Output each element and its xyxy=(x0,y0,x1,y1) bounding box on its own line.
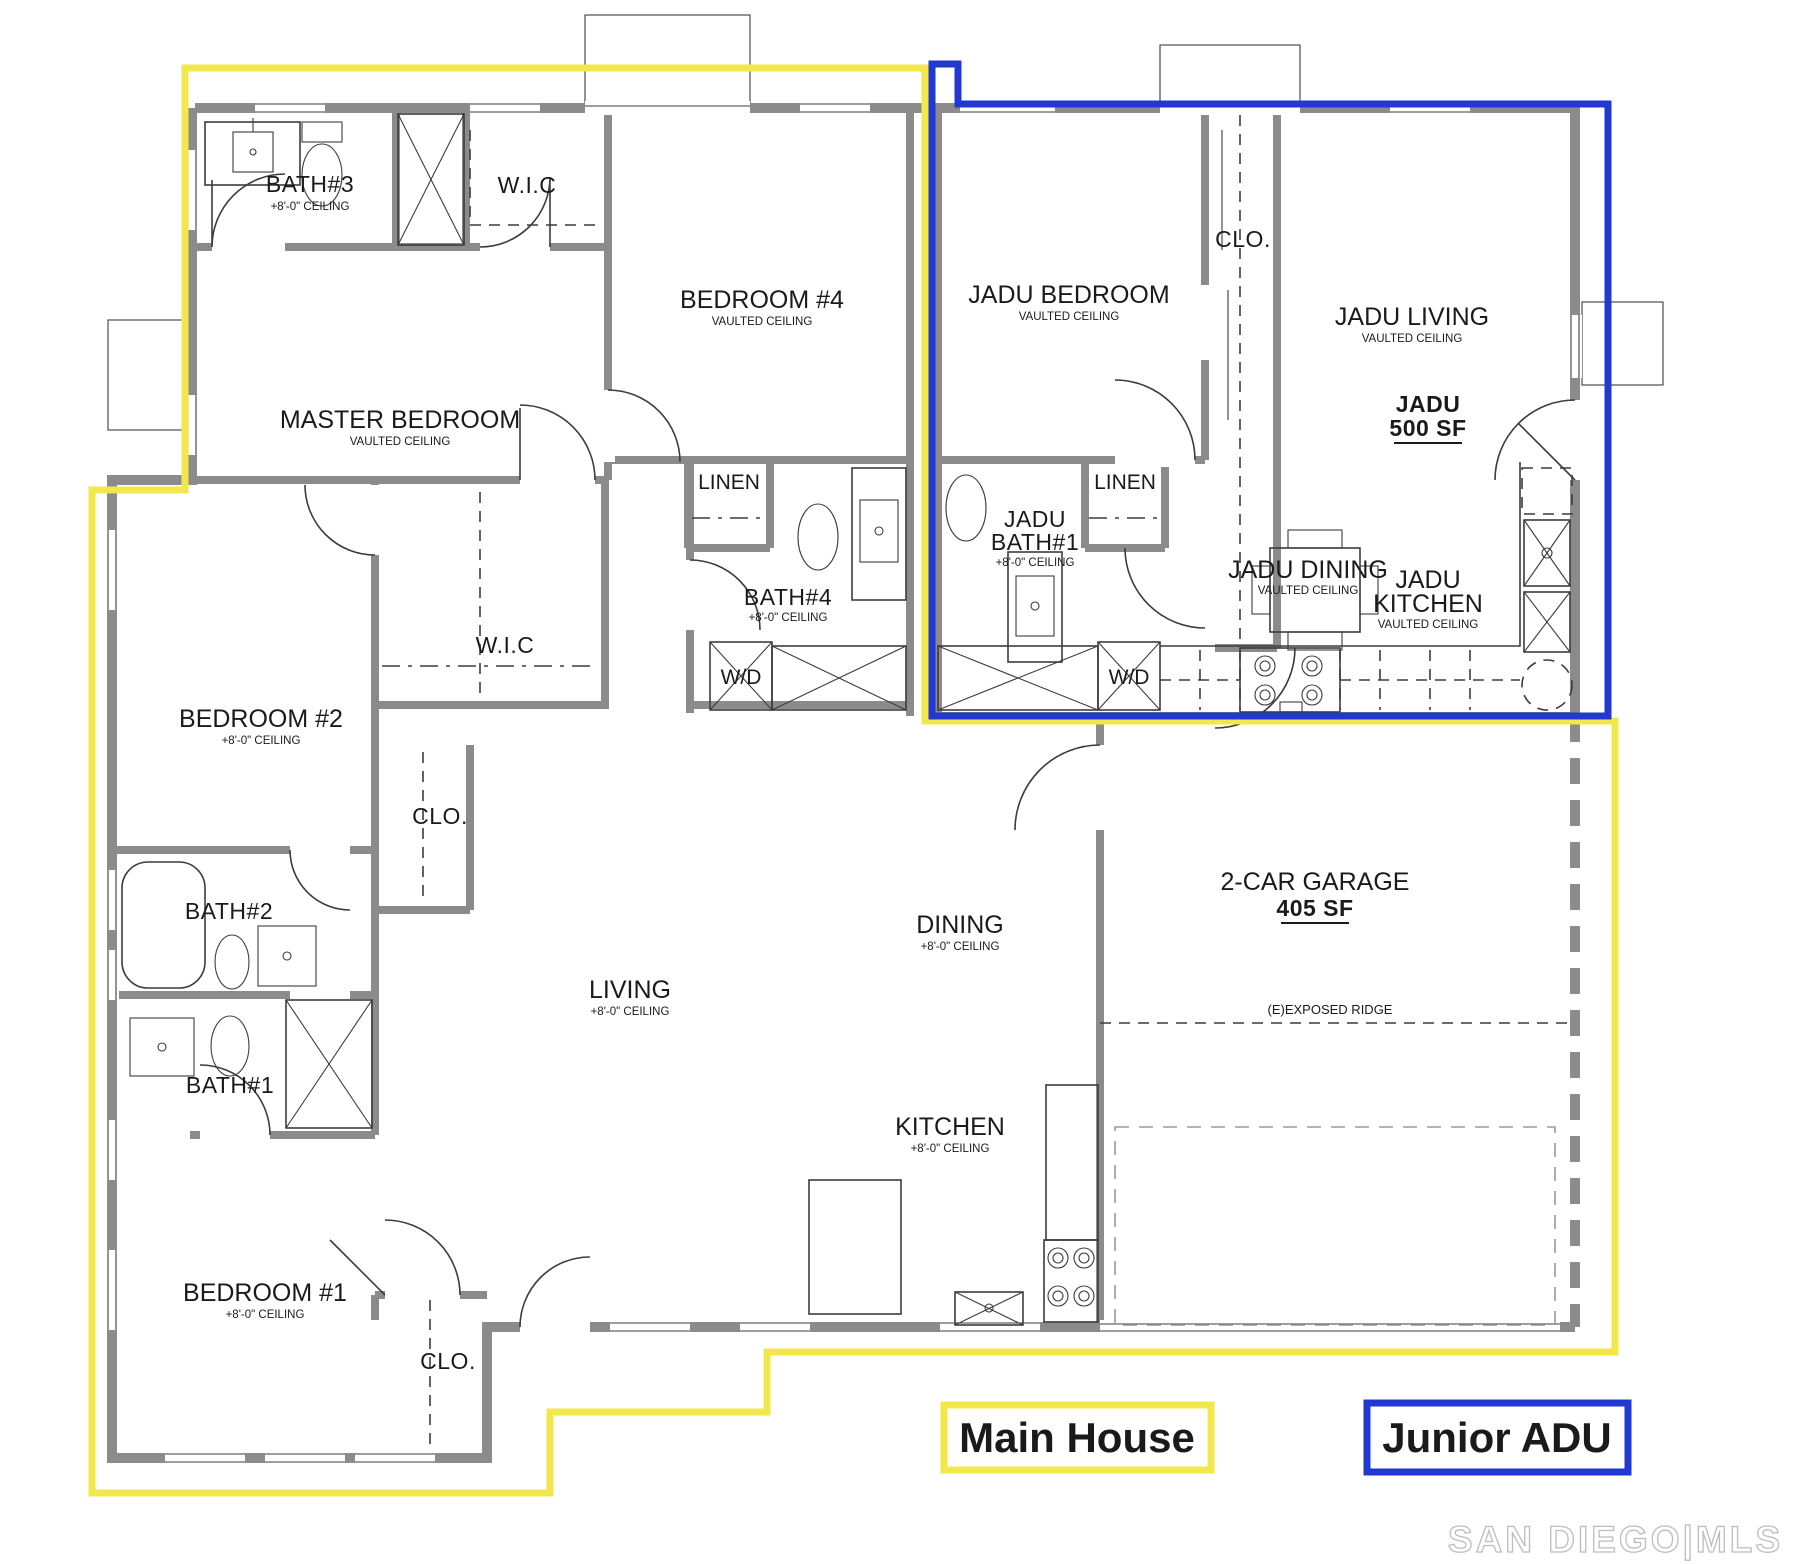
label-dining-sub: +8'-0" CEILING xyxy=(921,941,1000,953)
label-master-bedroom-sub: VAULTED CEILING xyxy=(350,436,451,448)
label-wd-left: W/D xyxy=(721,666,762,689)
legend: Main House Junior ADU xyxy=(944,1403,1628,1472)
label-wic2: W.I.C xyxy=(476,632,535,658)
label-kitchen: KITCHEN xyxy=(895,1113,1005,1141)
label-linen-right: LINEN xyxy=(1094,471,1156,494)
junior-adu-legend-label: Junior ADU xyxy=(1382,1414,1611,1461)
door-swings xyxy=(200,174,1575,1327)
label-bedroom2-sub: +8'-0" CEILING xyxy=(222,735,301,747)
label-jadu-area-value: 500 SF xyxy=(1389,415,1466,441)
label-jadu-kitchen-line2: KITCHEN xyxy=(1373,590,1483,618)
label-bath2: BATH#2 xyxy=(185,898,273,924)
label-bedroom1: BEDROOM #1 xyxy=(183,1279,347,1307)
label-jadu-bath1-sub: +8'-0" CEILING xyxy=(996,557,1075,569)
label-clo1: CLO. xyxy=(420,1348,476,1374)
label-bath1: BATH#1 xyxy=(186,1072,274,1098)
label-jadu-living: JADU LIVING xyxy=(1335,303,1489,331)
label-garage: 2-CAR GARAGE xyxy=(1221,868,1410,896)
label-exposed-ridge: (E)EXPOSED RIDGE xyxy=(1268,1002,1393,1017)
floor-plan-drawing: BATH#3 +8'-0" CEILING W.I.C BEDROOM #4 V… xyxy=(0,0,1794,1564)
jadu-kitchen-fixtures xyxy=(1160,462,1572,712)
label-jadu-dining-sub: VAULTED CEILING xyxy=(1258,585,1359,597)
label-garage-sf: 405 SF xyxy=(1276,895,1353,921)
label-kitchen-sub: +8'-0" CEILING xyxy=(911,1143,990,1155)
label-jadu-clo: CLO. xyxy=(1215,226,1271,252)
label-clo2: CLO. xyxy=(412,803,468,829)
label-jadu-kitchen-sub: VAULTED CEILING xyxy=(1378,619,1479,631)
label-living-sub: +8'-0" CEILING xyxy=(591,1006,670,1018)
label-jadu-bedroom-sub: VAULTED CEILING xyxy=(1019,311,1120,323)
label-bedroom2: BEDROOM #2 xyxy=(179,705,343,733)
label-wd-right: W/D xyxy=(1109,666,1150,689)
label-bedroom4: BEDROOM #4 xyxy=(680,286,844,314)
label-living: LIVING xyxy=(589,976,671,1004)
label-master-bedroom: MASTER BEDROOM xyxy=(280,406,520,434)
exterior-bump-outlines xyxy=(108,15,1663,430)
label-bedroom4-sub: VAULTED CEILING xyxy=(712,316,813,328)
label-bedroom1-sub: +8'-0" CEILING xyxy=(226,1309,305,1321)
label-wic-top: W.I.C xyxy=(498,172,557,198)
label-bath3: BATH#3 xyxy=(266,171,354,197)
label-jadu-living-sub: VAULTED CEILING xyxy=(1362,333,1463,345)
label-bath3-sub: +8'-0" CEILING xyxy=(271,201,350,213)
garage-details xyxy=(1100,1023,1575,1325)
label-jadu-dining: JADU DINING xyxy=(1228,556,1388,584)
label-linen-left: LINEN xyxy=(698,471,760,494)
label-jadu-bath1-line2: BATH#1 xyxy=(991,529,1079,555)
label-bath4-sub: +8'-0" CEILING xyxy=(749,612,828,624)
floor-plan-page: BATH#3 +8'-0" CEILING W.I.C BEDROOM #4 V… xyxy=(0,0,1794,1564)
mls-watermark: SAN DIEGO|MLS xyxy=(1448,1519,1783,1561)
label-jadu-area: JADU xyxy=(1396,391,1461,417)
label-bath4: BATH#4 xyxy=(744,584,832,610)
label-dining: DINING xyxy=(916,911,1004,939)
main-house-legend-label: Main House xyxy=(959,1414,1195,1461)
label-jadu-bedroom: JADU BEDROOM xyxy=(968,281,1169,309)
